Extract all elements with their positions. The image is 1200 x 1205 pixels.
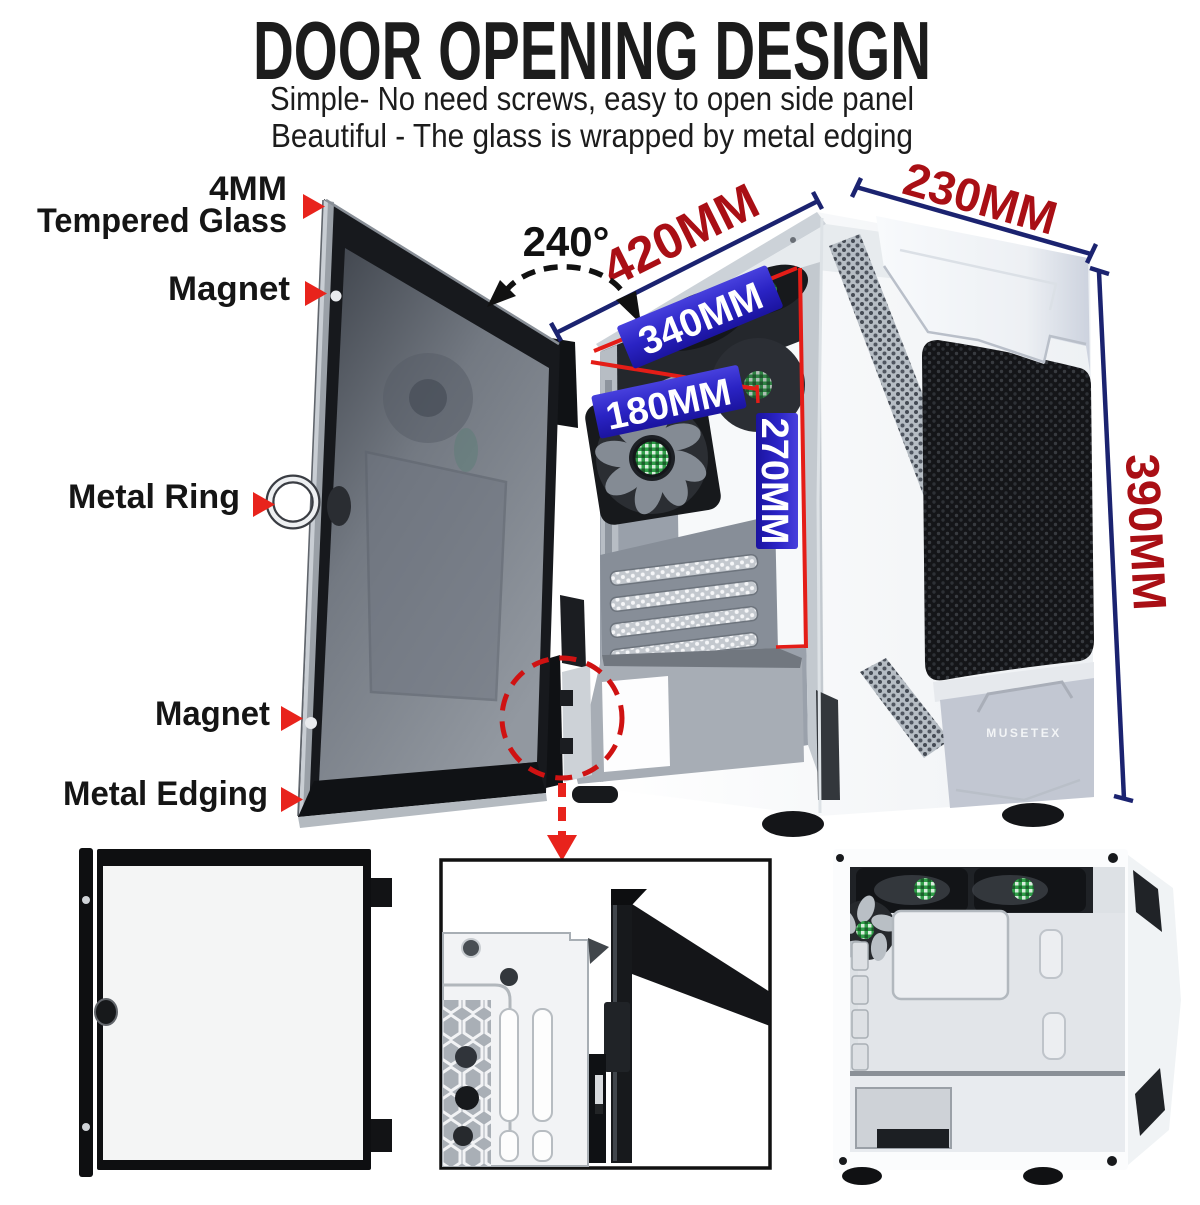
svg-text:240°: 240° [523,218,610,265]
svg-text:Simple- No need screws, easy t: Simple- No need screws, easy to open sid… [270,80,914,117]
svg-text:Tempered Glass: Tempered Glass [37,202,287,240]
svg-text:Magnet: Magnet [155,695,270,733]
svg-text:MUSETEX: MUSETEX [986,726,1062,740]
svg-text:Metal Edging: Metal Edging [63,775,268,813]
svg-text:Metal Ring: Metal Ring [68,478,240,516]
svg-text:270MM: 270MM [753,418,795,545]
svg-text:Magnet: Magnet [168,270,290,308]
svg-text:390MM: 390MM [1116,452,1177,611]
svg-text:Beautiful - The glass is wrapp: Beautiful - The glass is wrapped by meta… [271,117,913,154]
